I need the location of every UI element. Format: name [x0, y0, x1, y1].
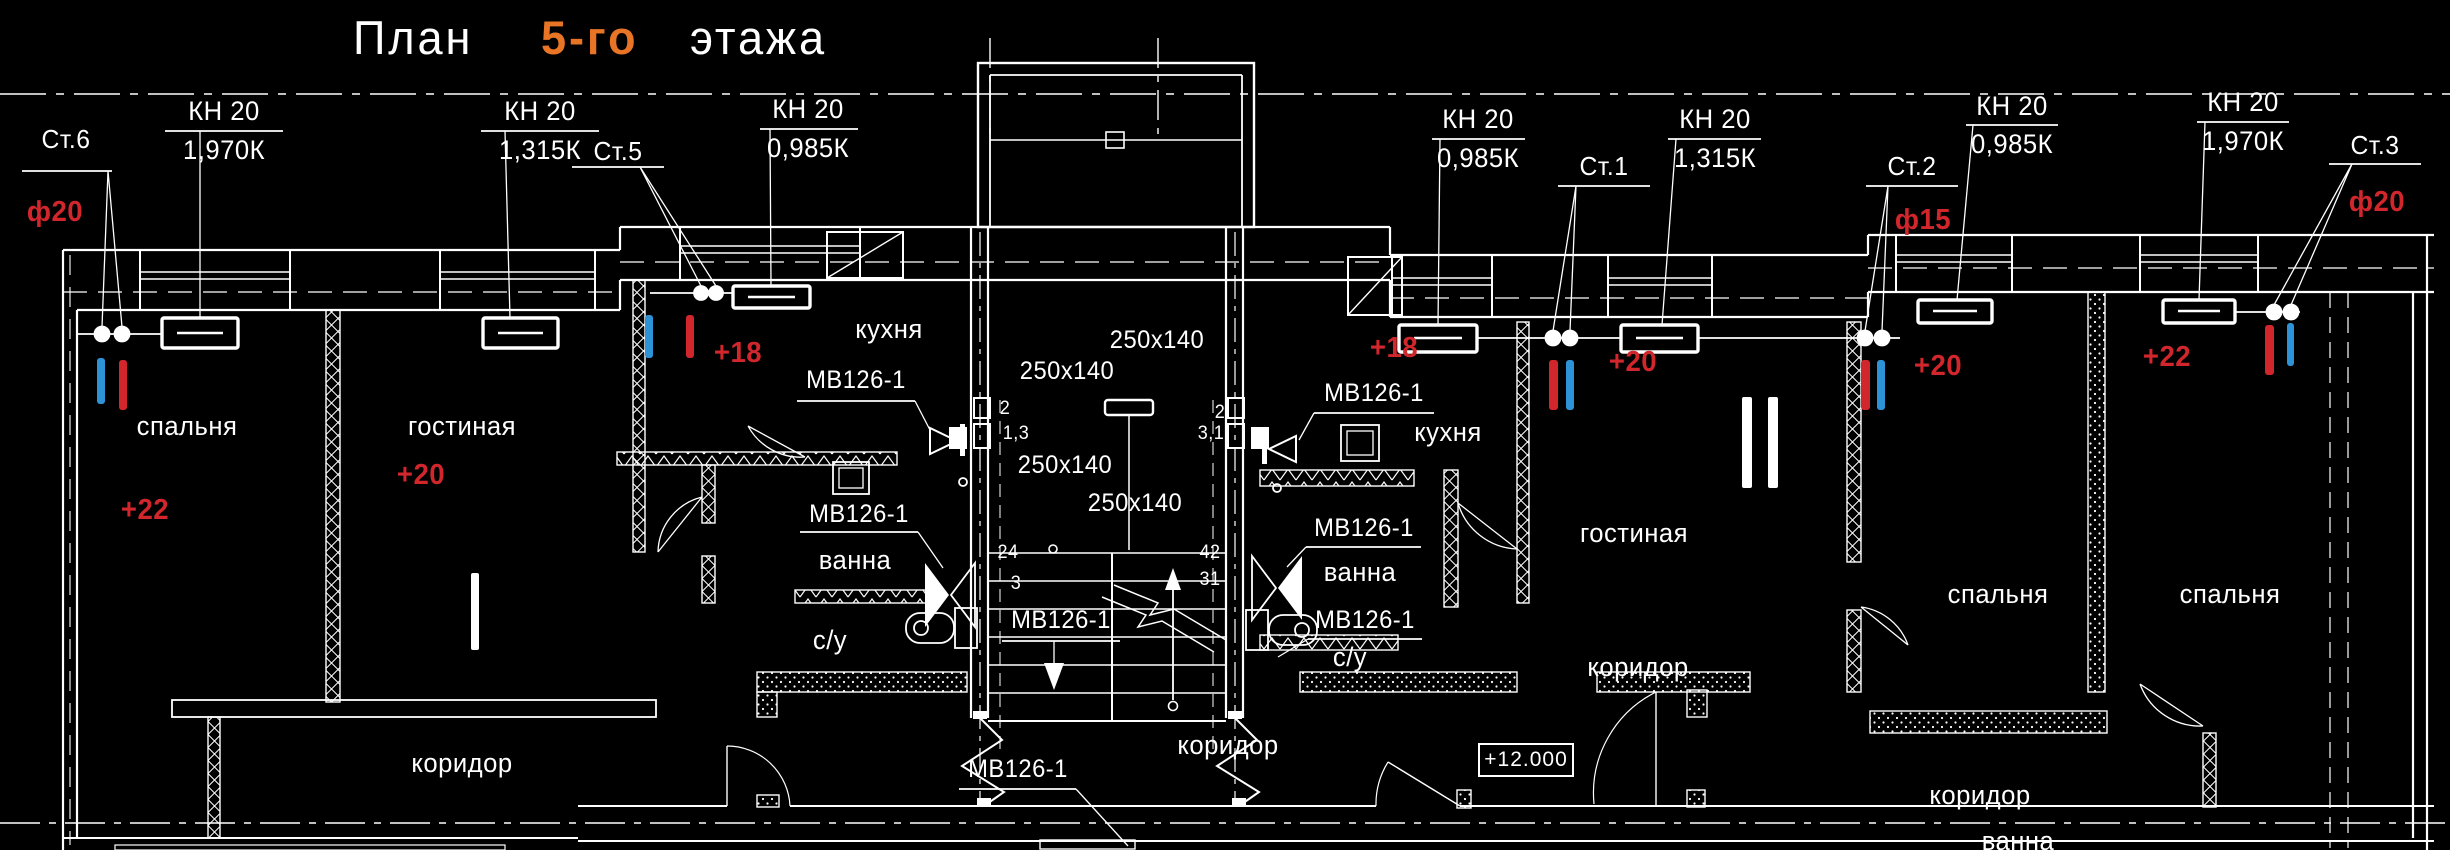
riser-pipe-red — [1549, 360, 1558, 410]
label-temperature: +18 — [714, 339, 762, 368]
label-kn-tag: КН 20 — [1976, 93, 2048, 120]
riser-pipe-blue — [645, 315, 653, 358]
label-duct-size: 250x140 — [1020, 359, 1114, 384]
label-room: с/у — [1333, 644, 1367, 671]
labels-layer: План 5-го этажа +12.000 КН 201,970ККН 20… — [0, 0, 2450, 850]
label-room: спальня — [2180, 581, 2281, 608]
label-kn-tag: КН 20 — [772, 96, 844, 123]
label-kn-tag: КН 20 — [1679, 106, 1751, 133]
label-riser-id: Ст.6 — [42, 126, 91, 152]
label-temperature: +22 — [121, 496, 169, 525]
label-stair-number: 3 — [1011, 574, 1022, 593]
label-duct-size: 250x140 — [1018, 453, 1112, 478]
label-shaft-number: 1,3 — [1003, 424, 1030, 443]
label-vent-unit: МВ126-1 — [1315, 608, 1415, 633]
riser-pipe-blue — [97, 358, 105, 404]
label-kn-load: 1,970К — [183, 137, 265, 164]
label-vent-unit: МВ126-1 — [1011, 608, 1111, 633]
label-kn-load: 1,970К — [2202, 128, 2284, 155]
label-room: спальня — [137, 413, 238, 440]
label-vent-unit: МВ126-1 — [809, 502, 909, 527]
riser-pipe-blue — [1877, 360, 1885, 410]
riser-pipe-blue — [1566, 360, 1574, 410]
label-temperature: +20 — [1609, 348, 1657, 377]
label-kn-tag: КН 20 — [2207, 89, 2279, 116]
label-kn-load: 0,985К — [1971, 131, 2053, 158]
label-room: с/у — [813, 627, 847, 654]
label-room: коридор — [411, 750, 512, 777]
label-shaft-number: 2 — [1215, 403, 1226, 422]
label-room: коридор — [1929, 782, 2030, 809]
label-kn-tag: КН 20 — [504, 98, 576, 125]
label-stair-number: 31 — [1199, 570, 1220, 589]
label-temperature: +22 — [2143, 343, 2191, 372]
label-room: спальня — [1948, 581, 2049, 608]
label-duct-size: 250x140 — [1088, 491, 1182, 516]
label-stair-number: 24 — [997, 543, 1018, 562]
label-vent-unit: МВ126-1 — [968, 757, 1068, 782]
label-vent-unit: МВ126-1 — [1324, 381, 1424, 406]
label-kn-tag: КН 20 — [188, 98, 260, 125]
riser-pipe-blue — [2287, 323, 2294, 366]
label-riser-id: Ст.3 — [2351, 132, 2400, 158]
label-kn-load: 1,315К — [499, 137, 581, 164]
floor-plan-canvas: План 5-го этажа +12.000 КН 201,970ККН 20… — [0, 0, 2450, 850]
label-riser-id: Ст.1 — [1580, 153, 1629, 179]
label-pipe-diameter: ф20 — [27, 198, 83, 227]
label-temperature: +20 — [397, 461, 445, 490]
label-riser-id: Ст.2 — [1888, 153, 1937, 179]
page-title-floor-number: 5-го — [541, 10, 638, 65]
label-room: коридор — [1177, 732, 1278, 759]
label-room: ванна — [1324, 559, 1397, 586]
label-temperature: +20 — [1914, 352, 1962, 381]
label-kn-load: 0,985К — [767, 135, 849, 162]
label-kn-load: 0,985К — [1437, 145, 1519, 172]
riser-pipe-red — [2265, 325, 2274, 375]
label-kn-load: 1,315К — [1674, 145, 1756, 172]
label-room: кухня — [855, 316, 923, 343]
riser-pipe-red — [119, 360, 127, 410]
page-title-word3: этажа — [690, 10, 827, 65]
label-room: ванна — [819, 547, 892, 574]
label-shaft-number: 3,1 — [1198, 424, 1225, 443]
elevation-mark: +12.000 — [1478, 743, 1574, 777]
apartment-type-mark-I — [471, 573, 479, 650]
page-title-word1: План — [353, 10, 473, 65]
label-shaft-number: 2 — [1000, 399, 1011, 418]
label-room: гостиная — [1580, 520, 1688, 547]
label-room: гостиная — [408, 413, 516, 440]
apartment-type-mark-II — [1742, 397, 1752, 488]
label-room: кухня — [1414, 419, 1482, 446]
label-vent-unit: МВ126-1 — [806, 368, 906, 393]
label-room: коридор — [1587, 654, 1688, 681]
label-temperature: +18 — [1370, 334, 1418, 363]
label-pipe-diameter: ф20 — [2349, 188, 2405, 217]
riser-pipe-red — [1861, 360, 1870, 410]
label-kn-tag: КН 20 — [1442, 106, 1514, 133]
riser-pipe-red — [686, 315, 694, 358]
label-duct-size: 250x140 — [1110, 328, 1204, 353]
label-vent-unit: МВ126-1 — [1314, 516, 1414, 541]
label-riser-id: Ст.5 — [594, 138, 643, 164]
label-room: ванна — [1982, 828, 2055, 850]
label-stair-number: 42 — [1199, 543, 1220, 562]
apartment-type-mark-II — [1768, 397, 1778, 488]
label-pipe-diameter: ф15 — [1895, 206, 1951, 235]
